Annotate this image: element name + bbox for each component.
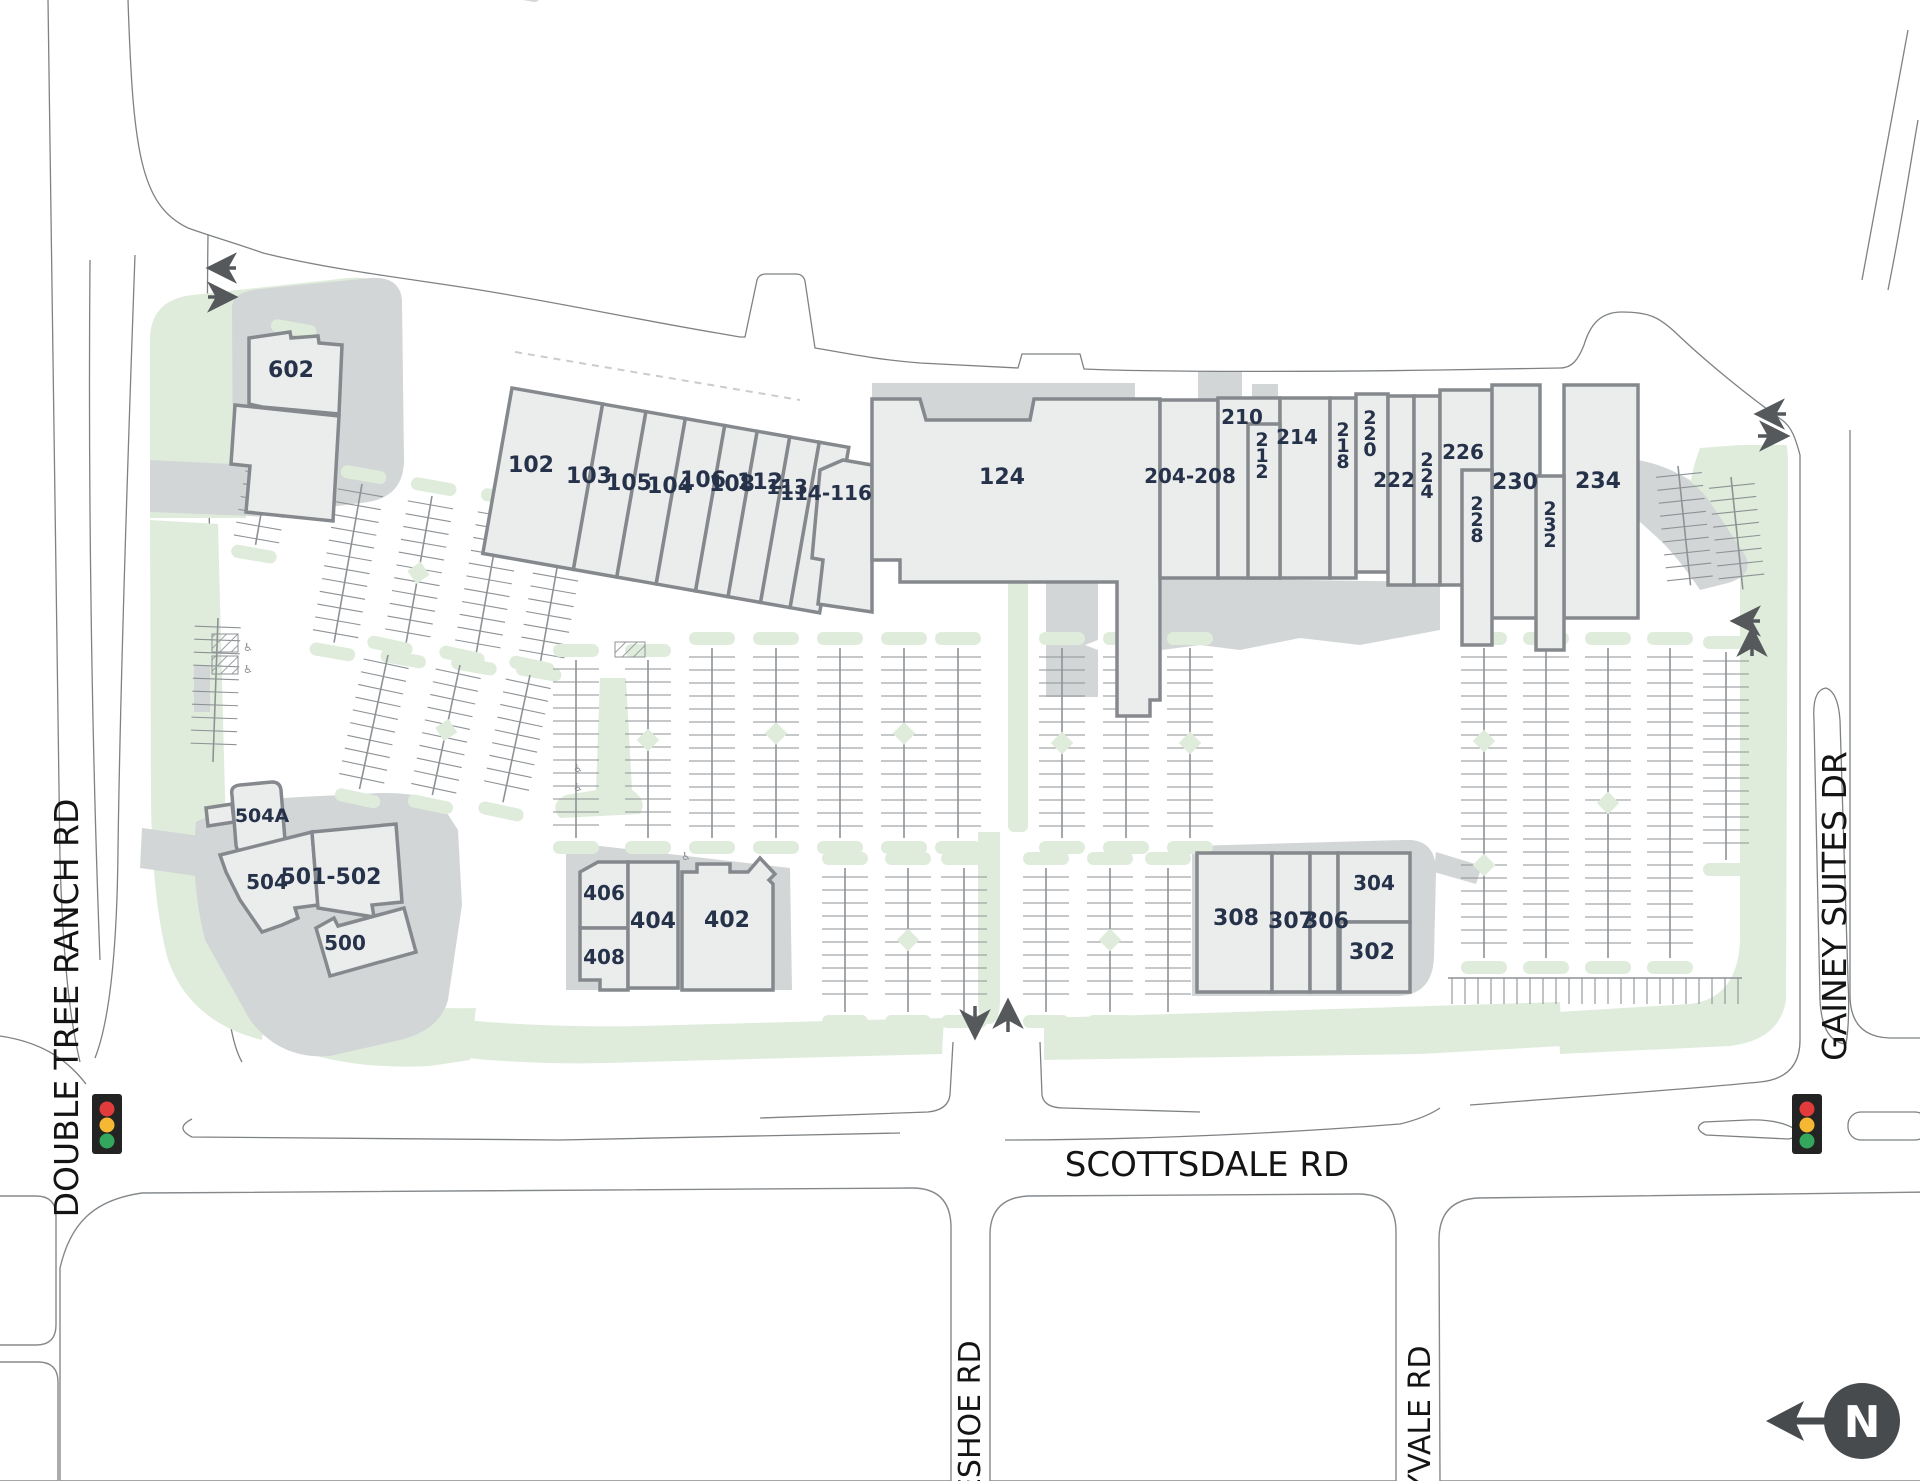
parking-row [1023,852,1069,1028]
road-south-median-left [183,1119,900,1140]
road-west-median-a [89,260,100,960]
accessible-parking-icon: ♿ [573,781,583,794]
parking-row [1167,632,1213,854]
unit-224-label: 224 [1420,449,1433,503]
unit-232-label: 232 [1543,498,1556,552]
parking-row [1461,632,1507,974]
unit-304-label: 304 [1353,871,1395,895]
road-south-teardrop-b [1848,1112,1920,1140]
unit-602-south-wing[interactable] [231,405,339,521]
parking-row [1448,978,1742,1004]
site-map: ♿ ♿ ♿ ♿ ♿ [0,0,1920,1481]
parking-row [1647,632,1693,974]
unit-220-label: 220 [1363,407,1376,461]
unit-406-label: 406 [583,881,625,905]
unit-230-label: 230 [1492,470,1538,495]
unit-234-label: 234 [1575,469,1621,494]
unit-114-116-label: 114-116 [780,481,872,505]
block-south-left [60,1188,951,1481]
roads [0,0,1920,1481]
parking-row [1087,852,1133,1028]
street-label-scottsdale-rd: SCOTTSDALE RD [1065,1145,1349,1185]
traffic-signal-west [92,1094,122,1154]
road-ne-diagonal-a [1862,30,1908,280]
unit-408-label: 408 [583,945,625,969]
unit-228-label: 228 [1470,493,1483,547]
signal-green-light [1800,1134,1815,1149]
unit-214-label: 214 [1276,425,1318,449]
road-west-median-b [95,255,135,1058]
accessible-parking-icon: ♿ [681,850,691,863]
unit-501-502-label: 501-502 [281,865,382,890]
accessible-parking-icon: ♿ [243,641,253,654]
unit-404-label: 404 [630,909,676,934]
unit-204-208[interactable] [1160,400,1218,578]
block-far-left-b [0,1362,58,1481]
unit-218-label: 218 [1336,419,1349,473]
signal-amber-light [1800,1118,1815,1133]
unit-402-label: 402 [704,908,750,933]
street-label-e-sunnyvale-rd: E SUNNYVALE RD [1403,1346,1438,1481]
parking-row [885,852,931,1028]
road-ne-diagonal-b [1888,120,1918,290]
parking-row [625,644,671,854]
unit-234[interactable] [1564,385,1638,618]
accessible-parking-icon: ♿ [573,762,583,775]
pad-north-strip [0,0,551,3]
unit-226-label: 226 [1442,440,1484,464]
unit-210-label: 210 [1221,405,1263,429]
traffic-signal-east [1792,1094,1822,1154]
parking-row [1585,632,1631,974]
unit-212-label: 212 [1255,429,1268,483]
signal-amber-light [100,1118,115,1133]
unit-230[interactable] [1492,385,1540,618]
unit-102-label: 102 [508,453,554,478]
unit-204-208-label: 204-208 [1144,464,1236,488]
parking-row [753,632,799,854]
signal-red-light [100,1102,115,1117]
pad-west-entry [150,460,252,516]
unit-504A-label: 504A [235,805,290,827]
signal-red-light [1800,1102,1815,1117]
unit-105-label: 105 [606,471,652,496]
parking-row [689,632,735,854]
parking-row [817,632,863,854]
road-south-teardrop-a [1698,1120,1796,1139]
compass-north-label: N [1844,1397,1881,1448]
unit-504A-arm[interactable] [206,804,234,826]
parking-row [881,632,927,854]
signal-green-light [100,1134,115,1149]
unit-500-label: 500 [324,931,366,955]
unit-124-label: 124 [979,465,1025,490]
parking-row [935,632,981,854]
parking-row [1523,632,1569,974]
accessible-parking-icon: ♿ [243,663,253,676]
road-south-median-right [1005,1108,1440,1140]
unit-222-label: 222 [1373,468,1415,492]
street-label-gainey-suites-dr: GAINEY SUITES DR [1815,751,1854,1061]
road-east-edge [1850,430,1920,1038]
unit-602-label: 602 [268,358,314,383]
parking-row [477,655,556,823]
unit-308-label: 308 [1213,906,1259,931]
parking-row [822,852,868,1028]
unit-306-label: 306 [1303,909,1349,934]
street-label-e-horseshoe-rd: E HORSESHOE RD [953,1340,988,1481]
site-map-svg: ♿ ♿ ♿ ♿ ♿ [0,0,1920,1481]
unit-302-label: 302 [1349,940,1395,965]
parking-row [1145,852,1191,1028]
street-label-double-tree-ranch-rd: DOUBLE TREE RANCH RD [47,799,86,1218]
block-south-middle [990,1194,1396,1481]
